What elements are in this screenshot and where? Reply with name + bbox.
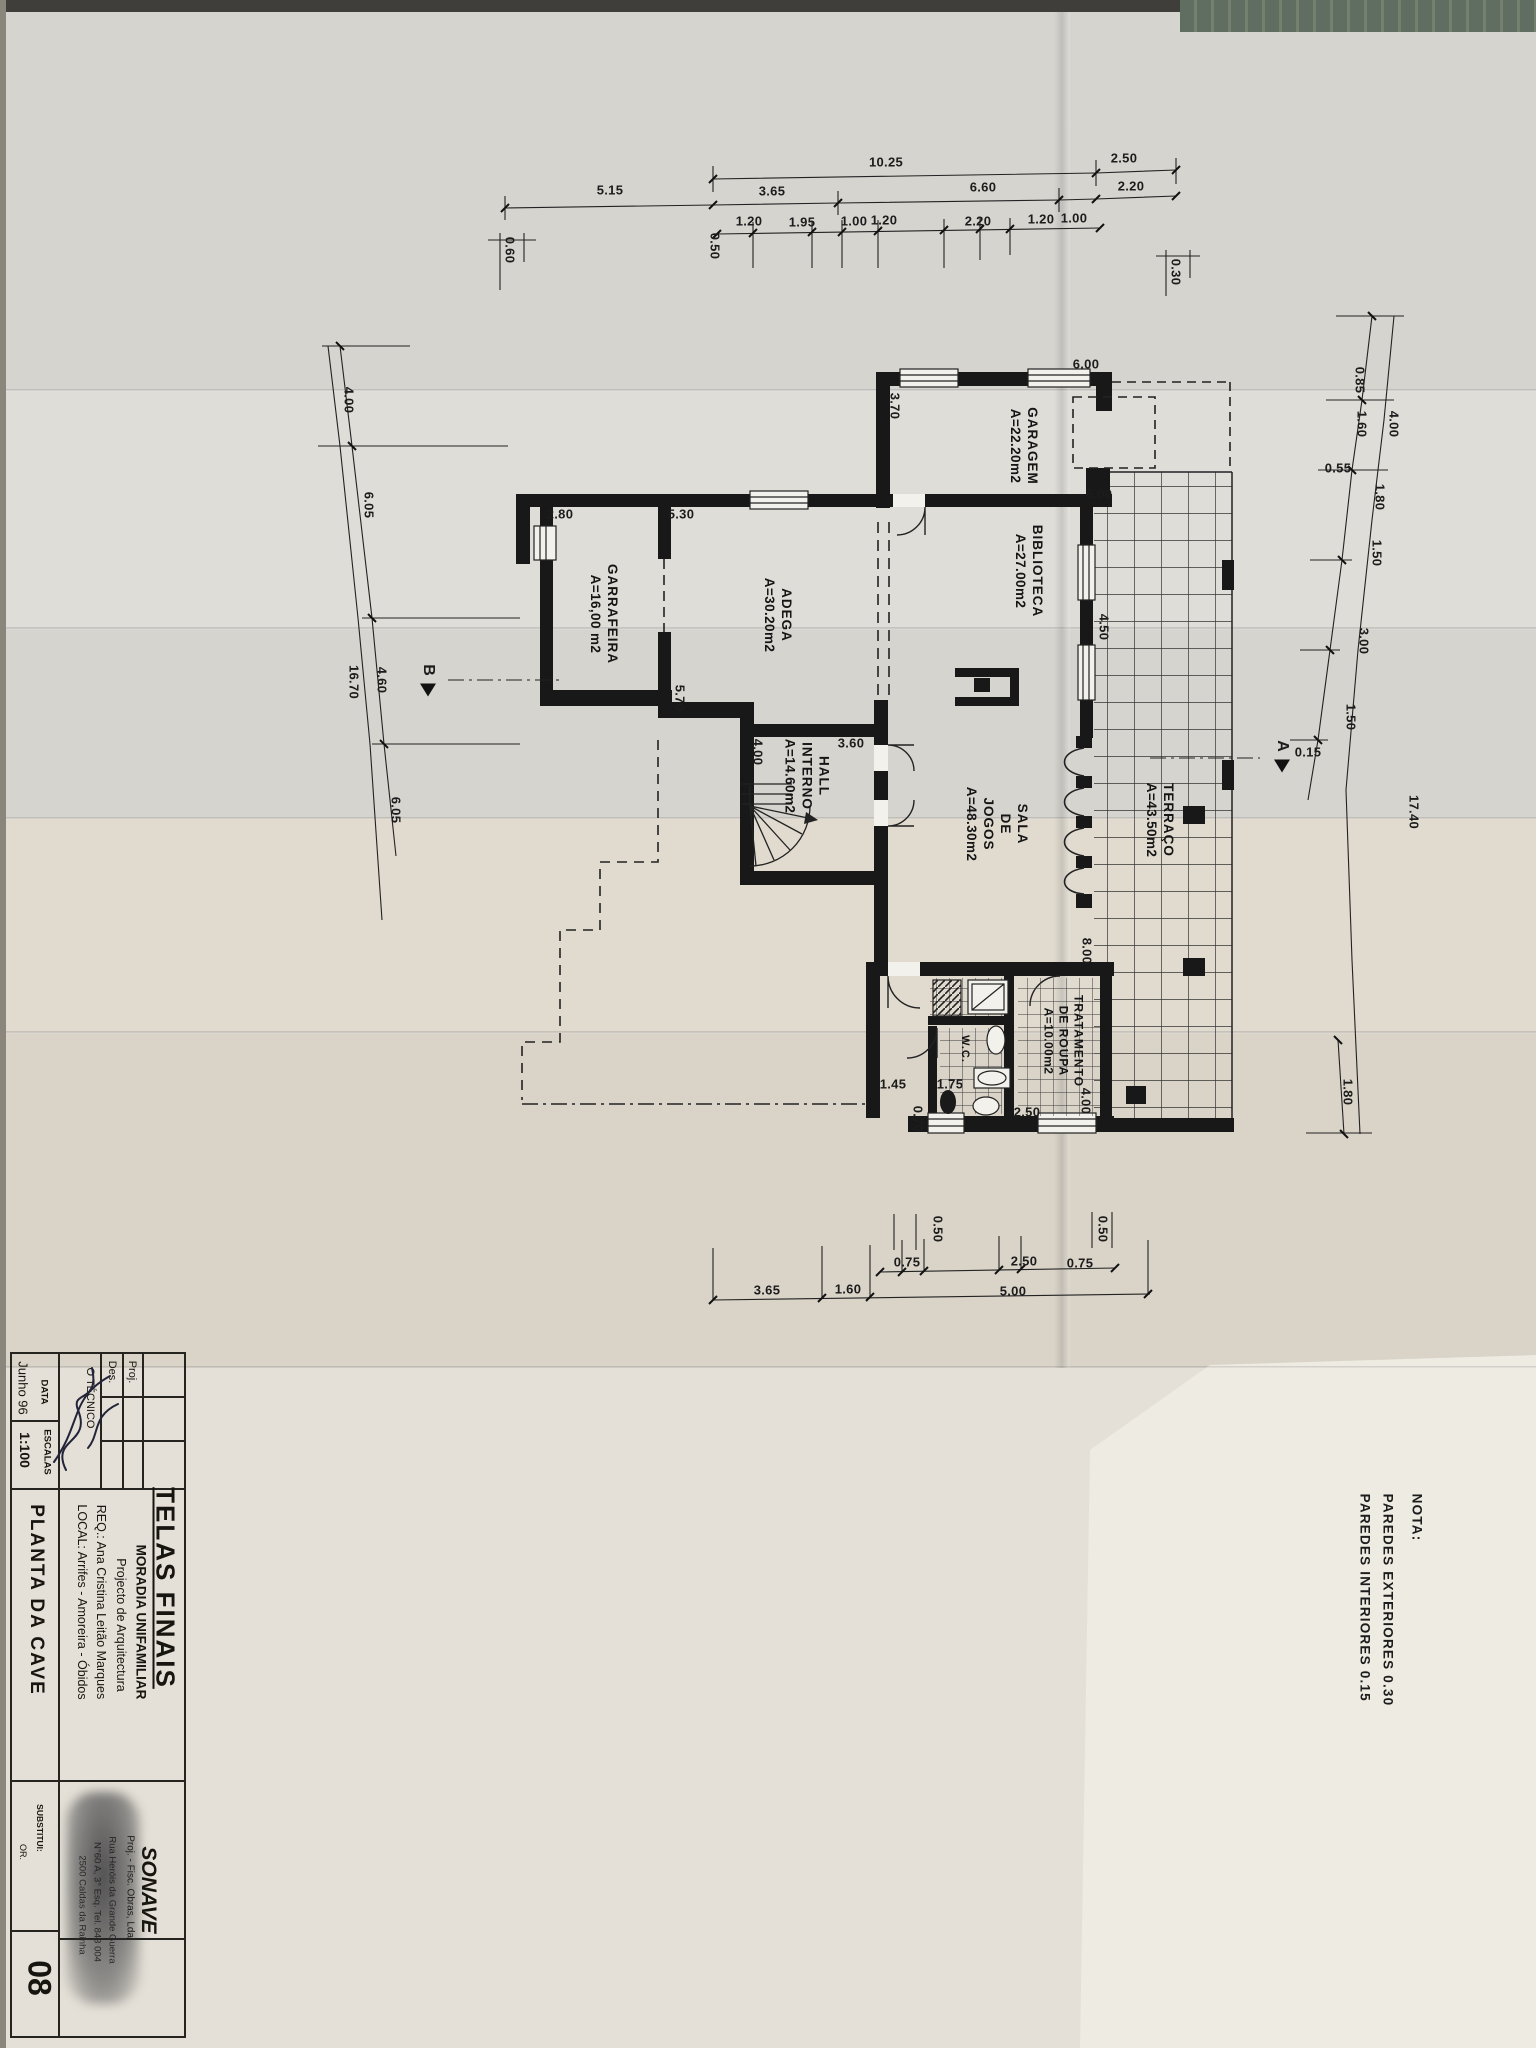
dim-label: 1.20: [1028, 212, 1055, 227]
room-name: DE ROUPA: [1056, 995, 1071, 1087]
room-label-terraco: TERRAÇO A=43.50m2: [1142, 783, 1176, 858]
dim-label: 0.75: [894, 1255, 921, 1270]
dim-label: 1.80: [1373, 484, 1388, 511]
note-block: NOTA: PAREDES EXTERIORES 0.30 PAREDES IN…: [1353, 1494, 1428, 1707]
dim-label: 5.15: [597, 183, 624, 198]
floor-plan-drawing: [0, 0, 1536, 2048]
room-area: A=22.20m2: [1006, 407, 1023, 485]
dim-label: 2.50: [1111, 151, 1138, 166]
photographed-floor-plan-sheet: 10.25 2.50 5.15 3.65 6.60 2.20 0.50 1.20…: [0, 0, 1536, 2048]
room-name: TERRAÇO: [1159, 783, 1176, 858]
room-name: TRATAMENTO: [1071, 995, 1086, 1087]
dim-label: 0.70: [911, 1106, 926, 1133]
dim-label: 1.20: [736, 214, 763, 229]
dim-label: 0.85: [1353, 367, 1368, 394]
dim-label: 1.45: [880, 1077, 907, 1092]
technician-signature: [48, 1352, 128, 1482]
room-area: A=43.50m2: [1142, 783, 1159, 858]
dim-label: 6.60: [970, 180, 997, 195]
room-label-sala-de-jogos: SALA DE JOGOS A=48.30m2: [962, 787, 1030, 862]
dim-label: 2.50: [1011, 1254, 1038, 1269]
dim-label: 10.25: [869, 155, 903, 170]
dim-label: 4.00: [1079, 1088, 1094, 1115]
dim-label: 17.40: [1407, 795, 1422, 829]
room-area: A=27.00m2: [1011, 525, 1028, 618]
dim-label: 6.00: [1086, 487, 1113, 502]
dim-label: 4.50: [1097, 614, 1112, 641]
dim-label: 0.50: [931, 1216, 946, 1243]
dim-label: 5.70: [673, 685, 688, 712]
dim-label: 6.05: [389, 797, 404, 824]
note-line: PAREDES EXTERIORES 0.30: [1376, 1494, 1399, 1707]
room-name: JOGOS: [979, 787, 996, 862]
room-name: DE: [996, 787, 1013, 862]
dim-label: 4.00: [751, 739, 766, 766]
dim-label: 3.65: [754, 1283, 781, 1298]
room-area: A=14.60m2: [781, 739, 798, 814]
dim-label: 2.50: [1014, 1105, 1041, 1120]
dim-label: 0.55: [1325, 461, 1352, 476]
main-title: TELAS FINAIS: [150, 1487, 181, 1689]
drawing-title: PLANTA DA CAVE: [25, 1504, 47, 1696]
room-name: GARAGEM: [1023, 407, 1040, 485]
local-line: LOCAL: Arrifes - Amoreira - Óbidos: [75, 1504, 89, 1699]
sheet-number: 08: [21, 1960, 58, 1996]
data-value: Junho 96: [16, 1361, 31, 1415]
dim-label: 3.00: [1357, 628, 1372, 655]
dim-label: 3.60: [838, 736, 865, 751]
room-area: A=10.00m2: [1041, 995, 1056, 1087]
dim-label: 2.20: [1118, 179, 1145, 194]
dim-label: 1.80: [1341, 1079, 1356, 1106]
req-line: REQ.: Ana Cristina Leitão Marques: [94, 1505, 108, 1700]
dim-label: 16.70: [347, 665, 362, 699]
room-label-adega: ADEGA A=30.20m2: [760, 578, 794, 653]
dim-label: 4.00: [342, 387, 357, 414]
section-marker-b: B: [419, 664, 437, 676]
room-label-garrafeira: GARRAFEIRA A=16,00 m2: [586, 564, 620, 664]
dim-label: 1.50: [1344, 704, 1359, 731]
dim-label: 1.00: [841, 214, 868, 229]
dim-label: 3.65: [759, 184, 786, 199]
section-marker-a: A: [1273, 740, 1291, 752]
dim-label: 0.30: [1169, 259, 1184, 286]
dim-label: 5.00: [1000, 1284, 1027, 1299]
section-marker-a-arrow-icon: [1274, 760, 1290, 773]
dim-label: 0.75: [1067, 1256, 1094, 1271]
room-name: GARRAFEIRA: [603, 564, 620, 664]
stamp-smudge: [66, 1792, 140, 2004]
dim-label: 0.50: [708, 233, 723, 260]
room-label-garagem: GARAGEM A=22.20m2: [1006, 407, 1040, 485]
room-area: A=16,00 m2: [586, 564, 603, 664]
dim-label: 1.60: [1355, 411, 1370, 438]
dim-label: 0.60: [503, 237, 518, 264]
dim-label: 1.00: [1061, 211, 1088, 226]
dim-label: 1.50: [1370, 540, 1385, 567]
dim-label: 1.75: [937, 1077, 964, 1092]
note-line: PAREDES INTERIORES 0.15: [1353, 1494, 1376, 1707]
substitui-value: OR.: [18, 1844, 28, 1860]
dim-label: 6.00: [1073, 357, 1100, 372]
dim-label: 0.50: [1096, 1216, 1111, 1243]
dim-label: 1.60: [835, 1282, 862, 1297]
project-subtitle: Projecto de Arquitectura: [114, 1558, 128, 1691]
project-type: MORADIA UNIFAMILIAR: [134, 1545, 149, 1700]
escalas-value: 1:100: [17, 1432, 33, 1468]
room-name: HALL: [814, 739, 831, 814]
dim-label: 2.80: [547, 507, 574, 522]
dim-label: 1.20: [871, 213, 898, 228]
room-area: A=48.30m2: [962, 787, 979, 862]
room-name: INTERNO: [798, 739, 815, 814]
room-area: A=30.20m2: [760, 578, 777, 653]
dim-label: 8.00: [1080, 938, 1095, 965]
dim-label: 4.60: [375, 667, 390, 694]
dim-label: 4.00: [1387, 411, 1402, 438]
room-label-wc: W.C.: [957, 1035, 971, 1063]
substitui-label: SUBSTITUI:: [35, 1804, 45, 1852]
dim-label: 0.15: [1295, 745, 1322, 760]
room-label-tratamento-de-roupa: TRATAMENTO DE ROUPA A=10.00m2: [1041, 995, 1086, 1087]
room-name: BIBLIOTECA: [1028, 525, 1045, 618]
dim-label: 5.30: [668, 507, 695, 522]
room-name: W.C.: [957, 1035, 971, 1063]
dim-label: 3.70: [888, 393, 903, 420]
room-name: ADEGA: [777, 578, 794, 653]
room-label-biblioteca: BIBLIOTECA A=27.00m2: [1011, 525, 1045, 618]
room-name: SALA: [1013, 787, 1030, 862]
note-heading: NOTA:: [1404, 1494, 1427, 1707]
dim-label: 1.95: [789, 215, 816, 230]
section-marker-b-arrow-icon: [420, 684, 436, 697]
dim-label: 6.05: [362, 492, 377, 519]
dim-label: 2.20: [965, 214, 992, 229]
room-label-hall-interno: HALL INTERNO A=14.60m2: [781, 739, 832, 814]
